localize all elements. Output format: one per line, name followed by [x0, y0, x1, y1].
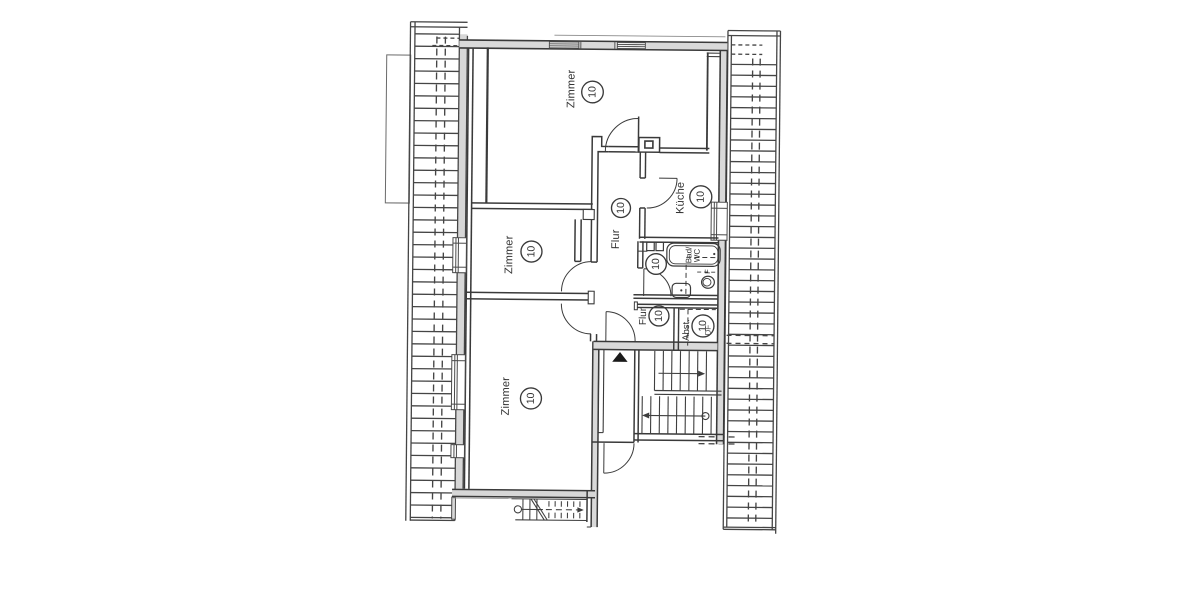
- svg-text:10: 10: [650, 258, 662, 270]
- svg-text:Abst.: Abst.: [681, 319, 692, 341]
- svg-text:DF: DF: [704, 325, 713, 336]
- svg-text:Flur: Flur: [638, 307, 649, 325]
- svg-text:Küche: Küche: [675, 182, 687, 214]
- svg-text:10: 10: [695, 191, 707, 203]
- svg-text:WC: WC: [693, 249, 702, 263]
- svg-text:Zimmer: Zimmer: [503, 235, 515, 274]
- svg-text:Zimmer: Zimmer: [500, 377, 512, 416]
- svg-text:10: 10: [586, 86, 598, 98]
- svg-text:Zimmer: Zimmer: [565, 69, 577, 108]
- svg-text:10: 10: [653, 310, 665, 322]
- svg-text:10: 10: [525, 392, 537, 404]
- svg-text:F: F: [703, 269, 712, 274]
- svg-text:Flur: Flur: [610, 229, 622, 249]
- svg-text:10: 10: [525, 245, 537, 257]
- svg-text:10: 10: [615, 202, 627, 214]
